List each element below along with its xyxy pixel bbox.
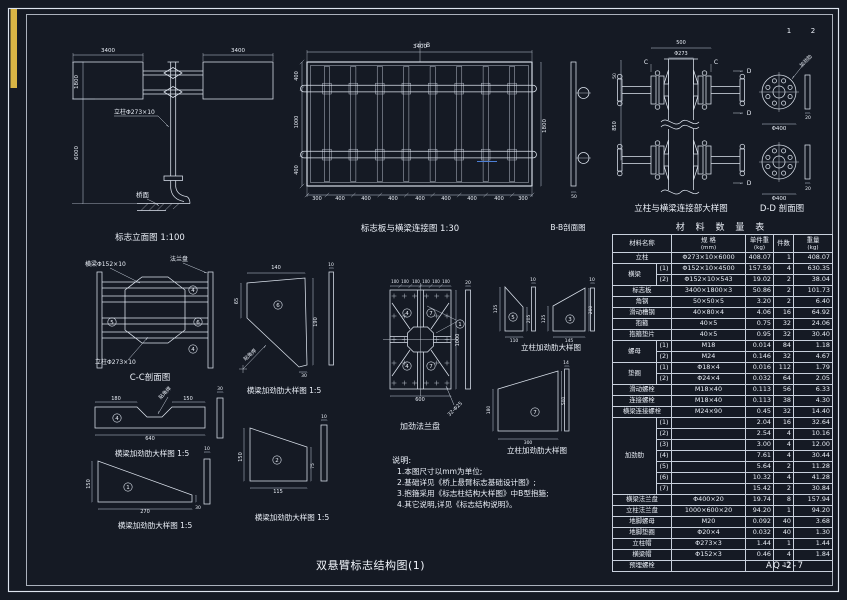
svg-text:1: 1 [458, 322, 462, 328]
material-cell: 2 [774, 462, 794, 473]
dim: 20 [805, 186, 811, 192]
dim: 30 [217, 386, 223, 392]
material-cell: 3.20 [746, 297, 774, 308]
material-cell: M18 [672, 341, 746, 352]
material-row: 角钢50×50×53.2026.40 [613, 297, 833, 308]
material-cell: 6.40 [794, 297, 833, 308]
bb-section-view [571, 62, 591, 192]
material-row: 横梁连接螺栓M24×900.453214.40 [613, 407, 833, 418]
material-row: 加劲肋(1)2.041632.64 [613, 418, 833, 429]
material-row: 地脚垫圈Φ20×40.032401.30 [613, 528, 833, 539]
material-cell: 滑动槽钢 [613, 308, 672, 319]
material-cell: (2) [657, 275, 672, 286]
material-cell: 抱箍垫片 [613, 330, 672, 341]
material-row: 横梁法兰盘Φ400×2019.748157.94 [613, 495, 833, 506]
material-cell: (4) [657, 451, 672, 462]
material-cell: 2 [774, 275, 794, 286]
material-cell: 32 [774, 330, 794, 341]
material-cell: 0.113 [746, 396, 774, 407]
part-number-bubble: 1 [456, 320, 464, 328]
dim: 10 [530, 277, 536, 283]
elevation-view [72, 53, 273, 211]
material-cell: (1) [657, 363, 672, 374]
part-number-bubble: 5 [509, 313, 517, 321]
material-cell: 10.16 [794, 429, 833, 440]
material-cell: 4 [774, 473, 794, 484]
notes-heading: 说明: [392, 455, 587, 466]
caption-elevation: 标志立面图 1:100 [115, 232, 185, 243]
weld-callout: 贴角焊 [157, 385, 173, 401]
caption-bb-section: B-B剖面图 [550, 222, 585, 232]
material-cell: 0.092 [746, 517, 774, 528]
material-cell: 11.28 [794, 462, 833, 473]
dim: 400 [335, 196, 345, 202]
material-row: 地脚螺母M200.092403.68 [613, 517, 833, 528]
part-number-bubble: 4 [189, 345, 197, 353]
svg-text:4: 4 [191, 288, 195, 294]
material-cell: 2.05 [794, 374, 833, 385]
notes-block: 说明: 1.本图尺寸以mm为单位;2.基础详见《桥上悬臂标志基础设计图》;3.抱… [392, 455, 587, 510]
board-beam-connection-view [300, 41, 541, 288]
material-row: 标志板3400×1800×350.862101.73 [613, 286, 833, 297]
dim: 50 [571, 194, 577, 200]
material-cell: 3.68 [794, 517, 833, 528]
material-cell: Φ152×10×4500 [672, 264, 746, 275]
material-cell [672, 429, 746, 440]
dim: 400 [361, 196, 371, 202]
material-cell: 2 [774, 286, 794, 297]
material-cell [672, 473, 746, 484]
material-cell: 0.113 [746, 385, 774, 396]
material-table-title: 材 料 数 量 表 [612, 220, 832, 233]
header-count: 件数 [774, 235, 794, 253]
header-spec: 规 格(mm) [672, 235, 746, 253]
material-cell: 2 [774, 297, 794, 308]
caption-cc-section: C-C剖面图 [130, 372, 170, 383]
material-cell: 0.032 [746, 374, 774, 385]
material-cell: Φ152×10×543 [672, 275, 746, 286]
svg-text:7: 7 [429, 364, 433, 370]
dim: 10 [204, 446, 210, 452]
dim: 205 [526, 315, 532, 324]
material-cell: 30.84 [794, 484, 833, 495]
material-cell: 角钢 [613, 297, 672, 308]
material-cell: 19.02 [746, 275, 774, 286]
material-cell: 4 [774, 550, 794, 561]
yellow-margin-stripe [11, 9, 18, 88]
stiffener-callout: 加劲肋 [798, 53, 814, 69]
material-cell [672, 451, 746, 462]
dim: 150 [183, 396, 193, 402]
material-cell: 0.75 [746, 319, 774, 330]
material-cell: (6) [657, 473, 672, 484]
svg-text:5: 5 [110, 320, 114, 326]
material-cell: 40×80×4 [672, 308, 746, 319]
material-cell: 1.79 [794, 363, 833, 374]
sheet-number-2: 2 [811, 27, 815, 35]
dim: 400 [415, 196, 425, 202]
dim: 200 [588, 306, 594, 315]
material-cell: M18×40 [672, 385, 746, 396]
dim: 1000 [455, 334, 461, 347]
material-cell: 16 [774, 308, 794, 319]
note-item: 2.基础详见《桥上悬臂标志基础设计图》; [392, 477, 587, 488]
material-cell [672, 418, 746, 429]
material-cell: 垫圈 [613, 363, 657, 385]
material-cell: 地脚垫圈 [613, 528, 672, 539]
note-item: 1.本图尺寸以mm为单位; [392, 466, 587, 477]
material-cell: 4.06 [746, 308, 774, 319]
column-callout: 立柱Φ273×10 [114, 108, 155, 116]
svg-text:4: 4 [191, 347, 195, 353]
dim: 400 [494, 196, 504, 202]
material-cell: 加劲肋 [613, 418, 657, 495]
material-cell: (1) [657, 341, 672, 352]
material-cell: 横梁 [613, 264, 657, 286]
part-number-bubble: 4 [403, 362, 411, 370]
dim: 300 [518, 196, 528, 202]
caption-beam-stiffener: 横梁加劲肋大样图 1:5 [118, 520, 193, 530]
material-cell [672, 561, 746, 572]
drawing-number: AQ-2-7 [766, 561, 805, 571]
material-cell [672, 440, 746, 451]
material-cell: 94.20 [794, 506, 833, 517]
material-cell: 立柱 [613, 253, 672, 264]
material-cell: 64 [774, 374, 794, 385]
material-cell: 12.00 [794, 440, 833, 451]
part-number-bubble: 7 [427, 362, 435, 370]
dim: Φ273 [674, 51, 687, 57]
dim: 150 [238, 452, 244, 462]
material-cell: 1000×600×20 [672, 506, 746, 517]
dim: Φ400 [772, 126, 787, 132]
material-cell: 30.44 [794, 451, 833, 462]
caption-beam-stiffener: 横梁加劲肋大样图 1:5 [247, 385, 322, 395]
svg-text:2: 2 [275, 458, 279, 464]
dim: 270 [140, 509, 150, 515]
material-cell: 1 [774, 253, 794, 264]
material-cell: 112 [774, 363, 794, 374]
material-cell: 56 [774, 385, 794, 396]
dim: 14 [563, 360, 569, 366]
material-cell: 84 [774, 341, 794, 352]
material-cell: (1) [657, 264, 672, 275]
caption-column-stiffener: 立柱加劲肋大样图 [521, 342, 581, 352]
dim: 100 [432, 279, 440, 284]
material-cell: 地脚螺母 [613, 517, 672, 528]
dim: 100 [412, 279, 420, 284]
material-cell: M24 [672, 352, 746, 363]
material-cell: 立柱法兰盘 [613, 506, 672, 517]
drawing-sheet: 4564647471537412 123400340018006000立柱Φ27… [0, 0, 847, 600]
column-callout: 立柱Φ273×10 [95, 358, 136, 366]
dim: 400 [467, 196, 477, 202]
dim: 190 [313, 317, 319, 327]
dim: 1800 [542, 119, 548, 133]
dim: 600 [415, 397, 425, 403]
dim: 400 [441, 196, 451, 202]
material-row: 抱箍垫片40×50.953230.40 [613, 330, 833, 341]
material-cell: (3) [657, 440, 672, 451]
dim: 3400 [101, 48, 115, 54]
material-cell: 40×5 [672, 330, 746, 341]
header-unit-weight: 单件重(kg) [746, 235, 774, 253]
material-row: 滑动槽钢40×80×44.061664.92 [613, 308, 833, 319]
part-number-bubble: 2 [273, 456, 281, 464]
section-mark: D [747, 68, 752, 75]
material-cell: 101.73 [794, 286, 833, 297]
dim: 110 [510, 338, 519, 344]
dim: 3400 [231, 48, 245, 54]
material-cell: 38 [774, 396, 794, 407]
dim: 1000 [294, 116, 300, 129]
material-cell: 408.07 [746, 253, 774, 264]
dim: 100 [391, 279, 399, 284]
svg-text:4: 4 [405, 311, 409, 317]
svg-text:7: 7 [533, 410, 537, 416]
material-cell: 1.84 [794, 550, 833, 561]
material-cell: 3.00 [746, 440, 774, 451]
material-cell: M18×40 [672, 396, 746, 407]
dim: 100 [401, 279, 409, 284]
material-cell: 4.30 [794, 396, 833, 407]
dim: 400 [294, 165, 300, 175]
material-cell: 32 [774, 319, 794, 330]
material-table: 材 料 数 量 表 材料名称 规 格(mm) 单件重(kg) 件数 重量(kg)… [612, 220, 832, 572]
dim: 10 [321, 414, 327, 420]
material-row: 连接螺栓M18×400.113384.30 [613, 396, 833, 407]
material-row: 立柱Φ273×10×6000408.071408.07 [613, 253, 833, 264]
dim: 125 [541, 315, 547, 324]
note-item: 4.其它说明,详见《标志结构说明》。 [392, 499, 587, 510]
section-mark: C [714, 59, 718, 66]
material-cell: 1.44 [794, 539, 833, 550]
material-cell: (1) [657, 418, 672, 429]
material-cell: 32 [774, 407, 794, 418]
caption-joint-detail: 立柱与横梁连接部大样图 [634, 203, 728, 214]
dim: 30 [195, 505, 201, 511]
deck-label: 桥面 [136, 190, 150, 199]
material-cell: Φ152×3 [672, 550, 746, 561]
beam-stiffener-pentagon-view [239, 268, 334, 373]
bolt-callout: 32-Φ25 [447, 401, 464, 418]
dim: 400 [294, 71, 300, 81]
dim: 65 [234, 298, 240, 304]
material-row: 螺母(1)M180.014841.18 [613, 341, 833, 352]
material-cell: 标志板 [613, 286, 672, 297]
dim: 10 [328, 262, 334, 268]
dim: 640 [145, 436, 155, 442]
material-cell: 预埋螺栓 [613, 561, 672, 572]
material-row: 垫圈(1)Φ18×40.0161121.79 [613, 363, 833, 374]
material-cell: 94.20 [746, 506, 774, 517]
svg-text:6: 6 [276, 303, 280, 309]
dim: 30 [301, 373, 307, 379]
dim: 150 [86, 479, 92, 489]
material-cell: 4 [774, 264, 794, 275]
material-cell: 157.94 [794, 495, 833, 506]
part-number-bubble: 6 [274, 301, 282, 309]
dim: 115 [273, 489, 283, 495]
beam-callout: 横梁Φ152×10 [85, 260, 126, 268]
material-cell: 408.07 [794, 253, 833, 264]
material-cell: 2 [774, 484, 794, 495]
material-cell: 5.64 [746, 462, 774, 473]
section-mark: D [747, 180, 752, 187]
flange-callout: 法兰盘 [170, 255, 188, 263]
dim: 850 [612, 121, 618, 131]
material-cell: 19.74 [746, 495, 774, 506]
material-row: 滑动螺栓M18×400.113566.33 [613, 385, 833, 396]
sheet-number-1: 1 [787, 27, 791, 35]
material-cell: 1.30 [794, 528, 833, 539]
part-number-bubble: 5 [108, 318, 116, 326]
material-cell: 24.06 [794, 319, 833, 330]
section-mark: D [747, 110, 752, 117]
material-cell: Φ20×4 [672, 528, 746, 539]
caption-stiffened-flange: 加劲法兰盘 [400, 421, 440, 431]
material-cell: 2.54 [746, 429, 774, 440]
part-number-bubble: 4 [189, 286, 197, 294]
material-cell: 抱箍 [613, 319, 672, 330]
caption-beam-stiffener: 横梁加劲肋大样图 1:5 [255, 512, 330, 522]
note-item: 3.抱箍采用《标志柱结构大样图》中B型抱箍; [392, 488, 587, 499]
material-cell: 630.35 [794, 264, 833, 275]
material-cell: 0.146 [746, 352, 774, 363]
dim: 100 [442, 279, 450, 284]
part-number-bubble: 7 [531, 408, 539, 416]
dim: 6000 [74, 146, 80, 160]
svg-text:7: 7 [429, 311, 433, 317]
dim: 10 [589, 277, 595, 283]
material-cell: 4 [774, 429, 794, 440]
header-material-name: 材料名称 [613, 235, 672, 253]
material-cell: (5) [657, 462, 672, 473]
material-cell: 0.95 [746, 330, 774, 341]
material-cell: (7) [657, 484, 672, 495]
material-cell: (2) [657, 352, 672, 363]
dim: 140 [271, 265, 281, 271]
material-cell: 16 [774, 418, 794, 429]
material-cell: 40 [774, 517, 794, 528]
caption-beam-stiffener: 横梁加劲肋大样图 1:5 [115, 448, 190, 458]
material-cell: 15.42 [746, 484, 774, 495]
part-number-bubble: 6 [194, 318, 202, 326]
section-mark: B [426, 42, 430, 49]
material-cell: 横梁法兰盘 [613, 495, 672, 506]
header-total-weight: 重量(kg) [794, 235, 833, 253]
material-row: 抱箍40×50.753224.06 [613, 319, 833, 330]
material-cell: 4 [774, 440, 794, 451]
dim: 20 [805, 115, 811, 121]
material-cell: 14.40 [794, 407, 833, 418]
dim: 125 [493, 305, 499, 314]
material-row: 横梁帽Φ152×30.4641.84 [613, 550, 833, 561]
material-cell: 40 [774, 528, 794, 539]
material-cell: 连接螺栓 [613, 396, 672, 407]
material-cell: 1 [774, 506, 794, 517]
part-number-bubble: 4 [113, 414, 121, 422]
part-number-bubble: 1 [124, 483, 132, 491]
material-cell: 0.46 [746, 550, 774, 561]
material-cell: 1.44 [746, 539, 774, 550]
material-cell: 38.04 [794, 275, 833, 286]
material-cell [672, 484, 746, 495]
drawing-title: 双悬臂标志结构图(1) [268, 557, 473, 573]
column-beam-joint-detail [618, 48, 745, 194]
dim: 20 [465, 280, 471, 286]
material-cell: 横梁连接螺栓 [613, 407, 672, 418]
material-cell: Φ18×4 [672, 363, 746, 374]
svg-text:3: 3 [568, 317, 572, 323]
material-cell: 1.18 [794, 341, 833, 352]
material-row: 立柱法兰盘1000×600×2094.20194.20 [613, 506, 833, 517]
svg-text:1: 1 [126, 485, 130, 491]
material-cell: 7.61 [746, 451, 774, 462]
dim: 50 [612, 73, 618, 79]
part-number-bubble: 7 [427, 309, 435, 317]
material-cell: 6.33 [794, 385, 833, 396]
material-cell: 64.92 [794, 308, 833, 319]
dim: 500 [561, 397, 567, 406]
material-cell: 157.59 [746, 264, 774, 275]
svg-text:4: 4 [405, 364, 409, 370]
caption-column-stiffener: 立柱加劲肋大样图 [507, 445, 567, 455]
dim: 1800 [74, 75, 80, 89]
material-cell: 0.016 [746, 363, 774, 374]
material-cell: 横梁帽 [613, 550, 672, 561]
material-cell: Φ273×10×6000 [672, 253, 746, 264]
material-cell: 32.64 [794, 418, 833, 429]
material-row: 立柱帽Φ273×31.4411.44 [613, 539, 833, 550]
caption-board-connection: 标志板与横梁连接图 1:30 [361, 223, 459, 234]
material-cell: 30.40 [794, 330, 833, 341]
dim: Φ400 [772, 196, 787, 202]
material-cell: M20 [672, 517, 746, 528]
dim: 400 [388, 196, 398, 202]
caption-dd-section: D-D 剖面图 [760, 203, 804, 214]
material-cell: 0.014 [746, 341, 774, 352]
material-cell: (2) [657, 429, 672, 440]
part-number-bubble: 4 [403, 309, 411, 317]
material-cell: 1 [774, 539, 794, 550]
material-cell: 50×50×5 [672, 297, 746, 308]
material-cell: 3400×1800×3 [672, 286, 746, 297]
material-cell: 50.86 [746, 286, 774, 297]
material-cell: 40×5 [672, 319, 746, 330]
material-cell: 32 [774, 352, 794, 363]
dim: 500 [676, 40, 686, 46]
material-cell: 滑动螺栓 [613, 385, 672, 396]
svg-text:4: 4 [115, 416, 119, 422]
dim: 75 [310, 463, 316, 469]
dim: 180 [486, 406, 492, 415]
material-cell: 10.32 [746, 473, 774, 484]
material-cell: M24×90 [672, 407, 746, 418]
material-cell: 螺母 [613, 341, 657, 363]
material-cell: 4 [774, 451, 794, 462]
material-cell: 4.67 [794, 352, 833, 363]
material-cell: Φ400×20 [672, 495, 746, 506]
material-row: 横梁(1)Φ152×10×4500157.594630.35 [613, 264, 833, 275]
dim: 100 [422, 279, 430, 284]
part-number-bubble: 3 [566, 315, 574, 323]
dim: 180 [111, 396, 121, 402]
material-cell: (2) [657, 374, 672, 385]
svg-text:5: 5 [511, 315, 515, 321]
column-stiffener-views [493, 283, 595, 439]
material-cell: Φ273×3 [672, 539, 746, 550]
